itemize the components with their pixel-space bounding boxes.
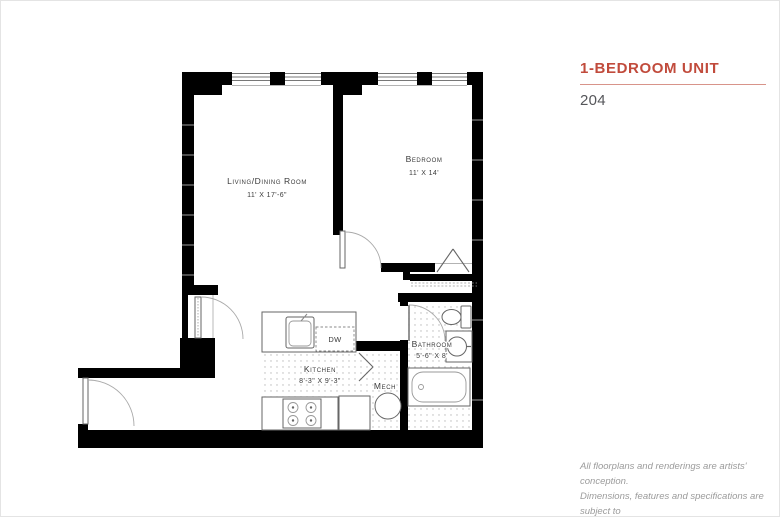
disclaimer-line: Dimensions, features and specifications … <box>580 489 780 517</box>
room-label-living: Living/Dining Room <box>227 176 307 186</box>
room-dims-bathroom: 5'-6" X 8' <box>416 353 448 360</box>
unit-number: 204 <box>580 92 776 109</box>
refrigerator <box>339 396 370 430</box>
disclaimer: All floorplans and renderings are artist… <box>580 459 780 517</box>
stove <box>283 399 321 428</box>
room-label-kitchen: Kitchen <box>304 364 336 374</box>
room-label-bathroom: Bathroom <box>412 339 453 349</box>
room-dims-living: 11' X 17'-6" <box>247 192 287 199</box>
bedroom-door <box>340 231 381 268</box>
info-panel: 1-BEDROOM UNIT 204 <box>580 60 776 109</box>
dishwasher: DW <box>316 327 354 351</box>
room-label-bedroom: Bedroom <box>406 154 443 164</box>
room-dims-kitchen: 8'-3" X 9'-3" <box>299 378 341 385</box>
room-dims-bedroom: 11' X 14' <box>409 170 439 177</box>
title-underline <box>580 84 766 85</box>
disclaimer-line: All floorplans and renderings are artist… <box>580 459 780 489</box>
living-closet-door <box>195 295 243 339</box>
bathtub <box>408 368 470 406</box>
floorplan-svg: DW <box>0 0 510 517</box>
dishwasher-label: DW <box>328 335 342 344</box>
floorplan-sheet: DW <box>0 0 780 517</box>
entry-door <box>83 378 134 426</box>
water-heater <box>375 393 401 419</box>
unit-type-title: 1-BEDROOM UNIT <box>580 60 776 77</box>
room-label-mech: Mech <box>374 381 396 391</box>
kitchen-sink <box>286 314 314 348</box>
